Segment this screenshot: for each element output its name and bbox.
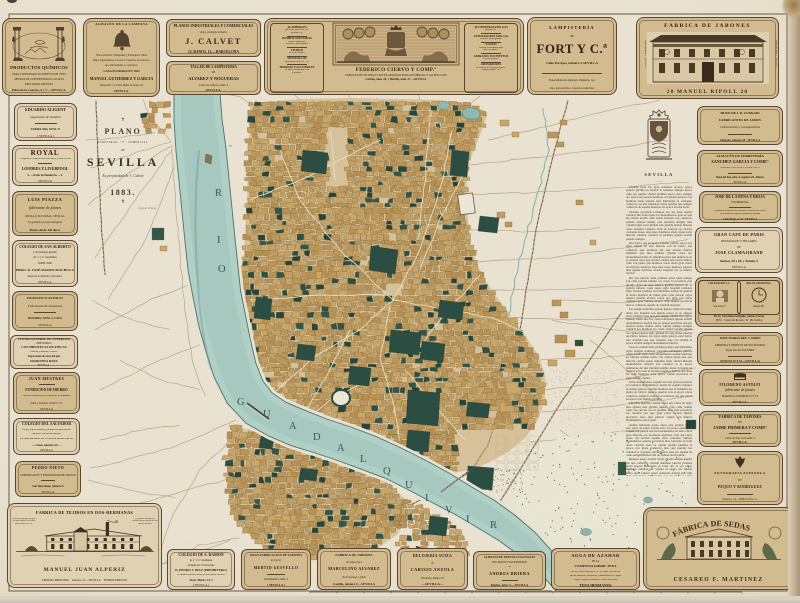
svg-text:I: I (217, 235, 221, 246)
svg-text:U: U (263, 409, 271, 420)
svg-text:R: R (215, 188, 222, 199)
svg-text:I: I (466, 514, 470, 525)
svg-text:R: R (490, 520, 497, 531)
svg-text:Q: Q (383, 466, 391, 477)
svg-text:V: V (445, 505, 453, 516)
svg-text:D: D (313, 432, 321, 443)
svg-text:A: A (337, 443, 345, 454)
svg-text:O: O (218, 264, 226, 275)
svg-text:G: G (237, 397, 245, 408)
svg-text:L: L (360, 454, 366, 465)
svg-text:A: A (289, 421, 297, 432)
svg-text:I: I (425, 493, 429, 504)
svg-text:FÁBRICA DE SEDAS: FÁBRICA DE SEDAS (671, 519, 752, 539)
svg-text:U: U (405, 480, 413, 491)
